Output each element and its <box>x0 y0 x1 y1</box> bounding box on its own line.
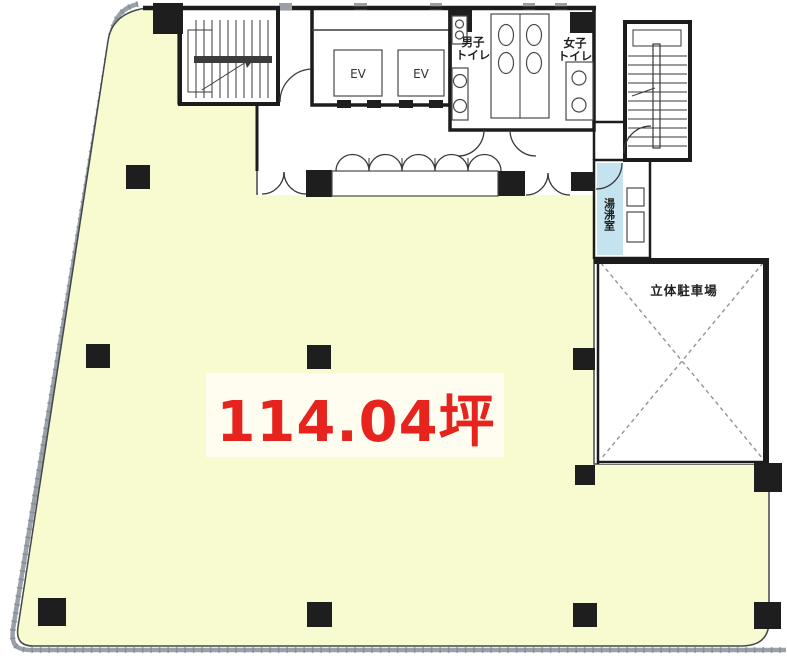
womens-toilet-label: 女子 トイレ <box>558 36 593 63</box>
floor-plan-svg: EV EV <box>0 0 787 664</box>
toilet-stall-column <box>491 14 549 118</box>
wall-segment <box>571 172 594 191</box>
area-size-text: 114.04坪 <box>216 390 495 455</box>
wall-cap <box>498 171 525 196</box>
toilet-fixture <box>499 25 514 46</box>
mens-toilet-label: 男子 トイレ <box>456 35 491 62</box>
svg-text:女子: 女子 <box>564 36 587 50</box>
pillar <box>307 345 331 369</box>
pillar <box>38 598 66 626</box>
wall-cap <box>306 170 332 197</box>
floor-plan: EV EV <box>0 0 787 664</box>
pillar <box>86 344 110 368</box>
elevator-2-label: EV <box>413 67 430 81</box>
svg-text:トイレ: トイレ <box>456 48 491 62</box>
elevator-1-label: EV <box>350 67 367 81</box>
parking-structure: 立体駐車場 <box>594 258 769 464</box>
pillar <box>570 12 594 33</box>
door-arc-vestibule <box>280 69 313 102</box>
pillar <box>153 3 183 34</box>
pillar <box>575 465 595 485</box>
pillar <box>754 602 781 629</box>
pillar <box>573 348 595 370</box>
kitchenette-label: 湯沸室 <box>603 197 616 231</box>
stairwell-right <box>624 22 690 160</box>
elevator-hall: EV EV <box>312 8 450 108</box>
toilet-fixture <box>499 53 514 74</box>
pillar <box>126 165 150 189</box>
pillar <box>307 602 332 627</box>
stair-treads-left <box>188 20 272 98</box>
pillar <box>754 463 782 492</box>
kitchen-counter <box>627 212 644 242</box>
svg-text:男子: 男子 <box>462 35 485 49</box>
kitchen-fixture <box>627 188 644 206</box>
toilet-fixture <box>527 25 542 46</box>
reception-counter <box>332 171 498 196</box>
pillar <box>573 603 597 627</box>
toilet-fixture <box>527 53 542 74</box>
parking-label: 立体駐車場 <box>650 283 718 298</box>
area-size-label: 114.04坪 <box>206 373 504 457</box>
svg-text:トイレ: トイレ <box>558 49 593 63</box>
stairwell-left <box>180 8 278 104</box>
